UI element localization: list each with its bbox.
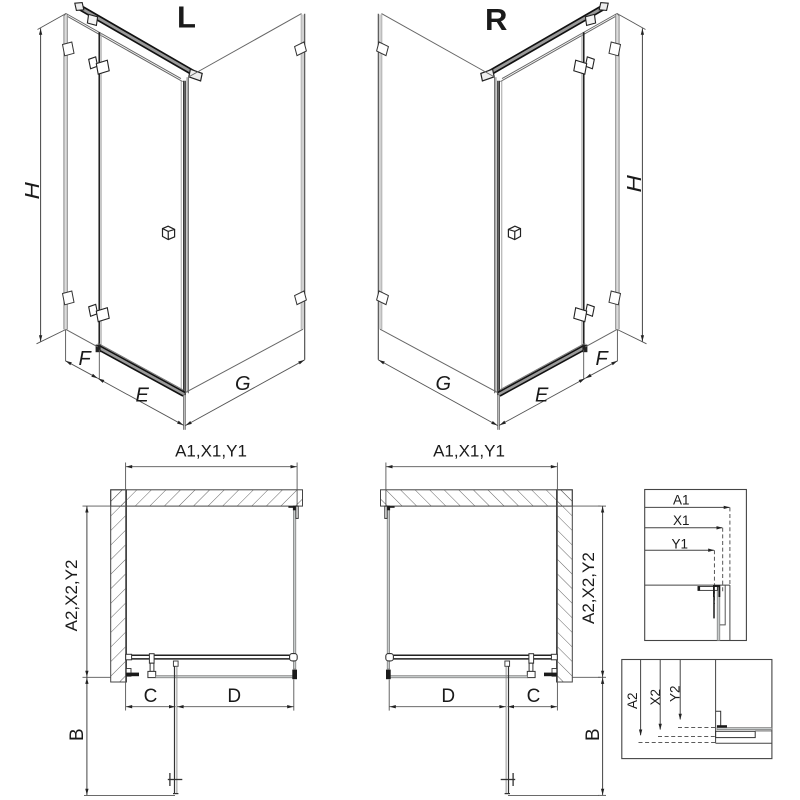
svg-text:F: F [596,348,610,370]
svg-text:G: G [436,373,452,395]
svg-text:A2,X2,Y2: A2,X2,Y2 [579,552,598,624]
svg-text:X1: X1 [673,513,690,528]
svg-text:H: H [21,182,44,199]
svg-text:E: E [535,385,549,407]
svg-text:A2: A2 [625,692,640,709]
svg-text:C: C [144,686,158,707]
svg-text:F: F [79,348,93,370]
svg-text:Y2: Y2 [668,685,683,702]
svg-text:B: B [67,728,88,741]
svg-text:D: D [441,686,455,707]
svg-text:A2,X2,Y2: A2,X2,Y2 [62,560,81,632]
svg-text:D: D [227,686,241,707]
svg-text:A1: A1 [673,493,690,508]
svg-text:Y1: Y1 [672,537,689,552]
svg-text:G: G [235,373,251,395]
svg-text:A1,X1,Y1: A1,X1,Y1 [175,442,247,461]
svg-text:L: L [177,0,196,35]
svg-text:C: C [527,686,541,707]
svg-text:R: R [485,2,507,37]
svg-text:B: B [583,728,604,741]
svg-text:X2: X2 [648,689,663,706]
svg-text:H: H [623,175,646,192]
svg-text:A1,X1,Y1: A1,X1,Y1 [433,442,505,461]
svg-text:E: E [136,385,150,407]
